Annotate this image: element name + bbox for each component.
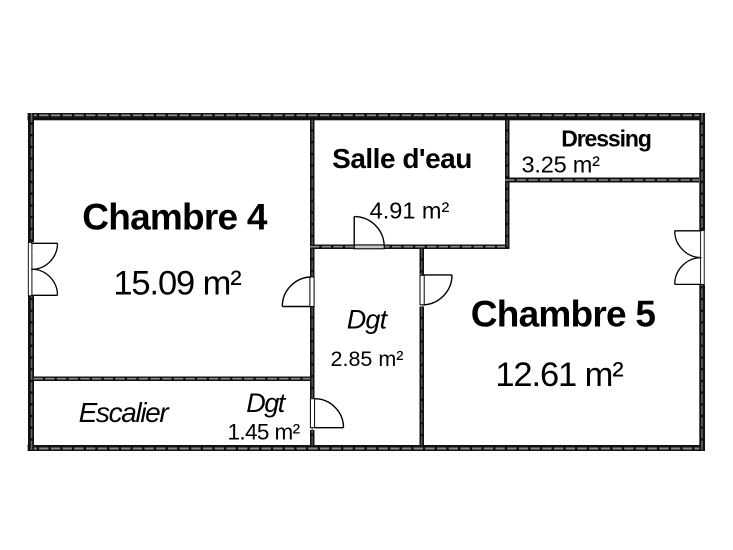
svg-text:Dgt: Dgt: [347, 305, 389, 335]
svg-text:4.91 m²: 4.91 m²: [370, 198, 450, 224]
svg-text:3.25 m²: 3.25 m²: [522, 151, 601, 177]
svg-text:12.61 m²: 12.61 m²: [495, 356, 623, 394]
svg-text:15.09 m²: 15.09 m²: [113, 265, 241, 303]
svg-text:2.85 m²: 2.85 m²: [331, 347, 404, 371]
svg-text:1.45 m²: 1.45 m²: [227, 420, 300, 445]
svg-text:Escalier: Escalier: [79, 397, 171, 428]
svg-text:Chambre 4: Chambre 4: [82, 197, 268, 238]
svg-text:Dressing: Dressing: [561, 126, 651, 152]
svg-text:Salle d'eau: Salle d'eau: [332, 143, 472, 174]
svg-text:Dgt: Dgt: [246, 388, 287, 418]
svg-text:Chambre 5: Chambre 5: [471, 294, 656, 335]
